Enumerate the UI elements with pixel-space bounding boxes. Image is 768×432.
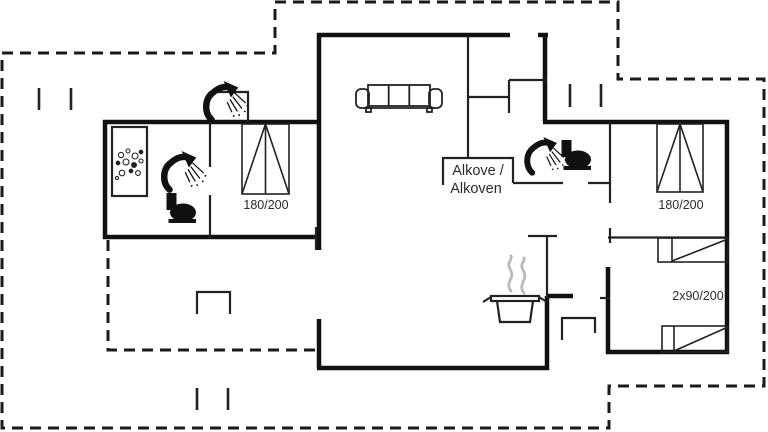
toilet-icon-bathroom-center — [562, 140, 592, 170]
double-bed-left — [242, 124, 289, 194]
single-bed-top — [658, 238, 728, 262]
terrace-inner-edge — [108, 240, 317, 350]
exterior-walls — [103, 33, 729, 370]
toilet-icon-bathroom-left — [167, 193, 197, 223]
sink-bubbles — [115, 149, 143, 180]
bed-left-size-label: 180/200 — [243, 198, 288, 212]
shower-icon-bathroom-center — [527, 137, 566, 173]
floor-plan-page: Alkove / Alkoven 180/200 180/200 2x90/20… — [0, 0, 768, 432]
twin-beds-size-label: 2x90/200 — [672, 289, 723, 303]
stove-pot-icon — [483, 256, 547, 322]
floor-plan-canvas: Alkove / Alkoven 180/200 180/200 2x90/20… — [0, 0, 768, 432]
single-bed-bottom — [662, 326, 728, 352]
double-bed-right — [657, 124, 703, 192]
sofa-icon — [356, 85, 442, 112]
terrace-outline — [2, 2, 764, 428]
terrace-boundary-dashed — [2, 2, 764, 428]
sink-icon — [112, 127, 147, 196]
steam-icon — [509, 256, 525, 293]
entrance-steps-terrace — [197, 292, 230, 314]
bed-right-size-label: 180/200 — [658, 198, 703, 212]
kitchen-divider-upper — [528, 236, 557, 298]
alcove-label-line2: Alkoven — [450, 181, 502, 197]
shower-icon-niche — [206, 81, 248, 120]
shower-icon-bathroom-left — [164, 151, 206, 190]
entrance-inner-walls — [468, 80, 545, 113]
alcove-label-line1: Alkove / — [452, 163, 505, 179]
alcove-label-box: Alkove / Alkoven — [443, 158, 513, 197]
entrance-steps — [197, 292, 595, 340]
entrance-steps-back — [562, 318, 595, 340]
